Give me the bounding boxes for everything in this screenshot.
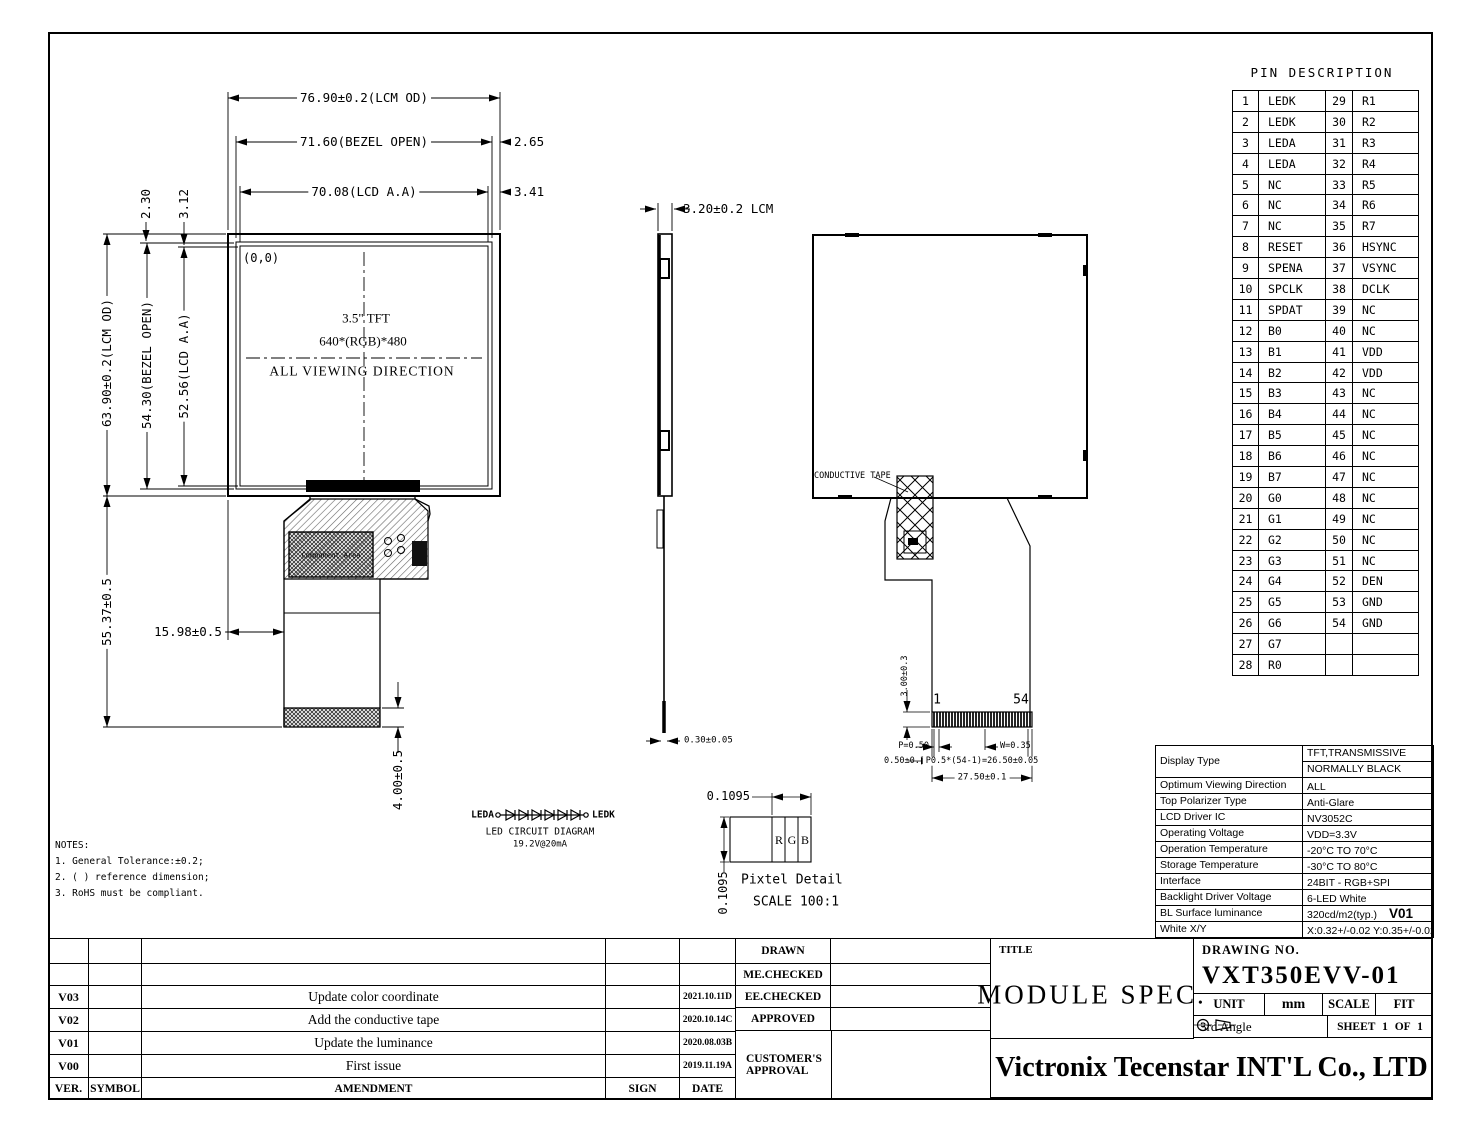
pin-number: 39 (1326, 299, 1353, 320)
company-cell: Victronix Tecenstar INT'L Co., LTD (991, 1039, 1432, 1096)
revision-row: V03 Update color coordinate 2021.10.11D (49, 986, 736, 1009)
unit-label: UNIT (1194, 994, 1265, 1015)
pin-number: 7 (1233, 216, 1259, 237)
pin-name: NC (1353, 446, 1419, 467)
revision-version: V00 (49, 1055, 89, 1078)
pin-name: SPDAT (1259, 299, 1326, 320)
pin-name: R6 (1353, 195, 1419, 216)
subpixel-g-label: G (788, 834, 797, 846)
pin-number: 49 (1326, 508, 1353, 529)
revision-symbol (89, 1055, 142, 1078)
revision-amendment: First issue (142, 1055, 606, 1078)
pin-number: 2 (1233, 111, 1259, 132)
revision-version: V01 (49, 1032, 89, 1055)
revision-header-symbol: SYMBOL (89, 1078, 142, 1100)
pin-number: 10 (1233, 279, 1259, 300)
revision-amendment: Update color coordinate (142, 986, 606, 1009)
pin-name: GND (1353, 613, 1419, 634)
revision-symbol (89, 1009, 142, 1032)
spec-value: TFT,TRANSMISSIVE (1303, 746, 1434, 762)
pin-table-row: 27 G7 (1233, 634, 1419, 655)
pin-name: VSYNC (1353, 258, 1419, 279)
pin-number: 42 (1326, 362, 1353, 383)
company-name: Victronix Tecenstar INT'L Co., LTD (995, 1052, 1428, 1084)
approval-label-me-checked: ME.CHECKED (736, 964, 831, 986)
revision-row: V01 Update the luminance 2020.08.03B (49, 1032, 736, 1055)
revision-empty-row (49, 964, 736, 986)
dim-side-tail: 0.30±0.05 (684, 737, 733, 746)
pin-name: R0 (1259, 655, 1326, 676)
spec-label: Operation Temperature (1156, 841, 1303, 857)
pin-number: 35 (1326, 216, 1353, 237)
pin-name: NC (1259, 216, 1326, 237)
spec-value: NORMALLY BLACK (1303, 761, 1434, 777)
pin-table-row: 21 G1 49 NC (1233, 508, 1419, 529)
approval-field-ee-checked (831, 986, 991, 1008)
pin-name: NC (1353, 487, 1419, 508)
display-spec-table: Display Type TFT,TRANSMISSIVE NORMALLY B… (1155, 745, 1434, 938)
pin-table-row: 17 B5 45 NC (1233, 425, 1419, 446)
approval-field-me-checked (831, 964, 991, 986)
pin-name: B4 (1259, 404, 1326, 425)
drawing-no-label: DRAWING NO. (1202, 944, 1300, 957)
revision-header-date: DATE (680, 1078, 736, 1100)
spec-row: Backlight Driver Voltage 6-LED White (1156, 889, 1434, 905)
pin-table-row: 28 R0 (1233, 655, 1419, 676)
pin-table-row: 7 NC 35 R7 (1233, 216, 1419, 237)
pin-table-row: 5 NC 33 R5 (1233, 174, 1419, 195)
conductive-tape-label: CONDUCTIVE TAPE (814, 472, 891, 481)
pin-number: 31 (1326, 132, 1353, 153)
pin-number: 36 (1326, 237, 1353, 258)
dim-connector-total-width: 27.50±0.1 (955, 774, 1010, 783)
dim-fpc-length: 55.37±0.5 (101, 575, 114, 649)
dim-contact-span: P0.5*(54-1)=26.50±0.05 (923, 757, 1042, 766)
spec-value: 320cd/m2(typ.)V01 (1303, 905, 1434, 921)
dim-aa-right-gap: 3.41 (514, 186, 544, 199)
pin-number: 20 (1233, 487, 1259, 508)
pin-number: 23 (1233, 550, 1259, 571)
pin-name: HSYNC (1353, 237, 1419, 258)
pixel-detail-scale: SCALE 100:1 (753, 896, 839, 909)
revision-date: 2020.10.14C (680, 1009, 736, 1032)
revision-row: V00 First issue 2019.11.19A (49, 1055, 736, 1078)
pin-number: 18 (1233, 446, 1259, 467)
panel-size-label: 3.5" TFT (342, 312, 390, 325)
revision-version: V03 (49, 986, 89, 1009)
pin-name: B3 (1259, 383, 1326, 404)
pin-name: VDD (1353, 341, 1419, 362)
pin-name: DCLK (1353, 279, 1419, 300)
pin-table-row: 14 B2 42 VDD (1233, 362, 1419, 383)
dim-bezel-right-gap: 2.65 (514, 136, 544, 149)
spec-label: Operating Voltage (1156, 825, 1303, 841)
dim-lcm-thickness: 3.20±0.2 LCM (683, 203, 773, 216)
pixel-detail-title: Pixtel Detail (741, 874, 843, 887)
title-cell: TITLE MODULE SPEC. (991, 939, 1194, 1039)
pin-number: 51 (1326, 550, 1353, 571)
pin-name: LEDA (1259, 153, 1326, 174)
spec-value: X:0.32+/-0.02 Y:0.35+/-0.02 (1303, 921, 1434, 937)
spec-label: Top Polarizer Type (1156, 793, 1303, 809)
pin-name: G6 (1259, 613, 1326, 634)
dim-contact-height: 3.00±0.3 (901, 656, 910, 697)
spec-label: Backlight Driver Voltage (1156, 889, 1303, 905)
dim-contact-margin: 0.50±0.1 (884, 757, 925, 766)
note-3: 3. RoHS must be compliant. (55, 889, 204, 899)
pin-number: 19 (1233, 467, 1259, 488)
pin-name: NC (1353, 425, 1419, 446)
pin-table-title: PIN DESCRIPTION (1251, 67, 1394, 80)
revision-sign (606, 1009, 680, 1032)
projection-sheet-row: 3rd Angle SHEET 1 OF 1 (1194, 1016, 1432, 1038)
document-title: MODULE SPEC. (977, 982, 1207, 1009)
pin-name: G2 (1259, 529, 1326, 550)
pin-number: 21 (1233, 508, 1259, 529)
spec-row: Storage Temperature -30°C TO 80°C (1156, 857, 1434, 873)
pin-name: NC (1353, 467, 1419, 488)
revision-header-row: VER. SYMBOL AMENDMENT SIGN DATE (49, 1078, 736, 1100)
pin-name: NC (1259, 195, 1326, 216)
revision-sign (606, 1055, 680, 1078)
pin-name: NC (1353, 550, 1419, 571)
approval-field-drawn (831, 939, 991, 964)
pin-number: 48 (1326, 487, 1353, 508)
side-view (640, 203, 690, 741)
pin-number: 34 (1326, 195, 1353, 216)
pin-table-row: 12 B0 40 NC (1233, 320, 1419, 341)
revision-amendment: Add the conductive tape (142, 1009, 606, 1032)
revision-amendment: Update the luminance (142, 1032, 606, 1055)
spec-row: Display Type TFT,TRANSMISSIVE (1156, 746, 1434, 762)
pin-name: G4 (1259, 571, 1326, 592)
spec-label: BL Surface luminance (1156, 905, 1303, 921)
dim-fpc-offset: 15.98±0.5 (151, 626, 225, 639)
connector-pin-54-label: 54 (1013, 694, 1029, 707)
spec-value: ALL (1303, 777, 1434, 793)
spec-row: Operation Temperature -20°C TO 70°C (1156, 841, 1434, 857)
unit-value: mm (1265, 994, 1323, 1015)
module-spec-drawing-sheet: 76.90±0.2(LCM OD) 71.60(BEZEL OPEN) 70.0… (0, 0, 1472, 1136)
drawing-number: VXT350EVV-01 (1202, 963, 1401, 988)
pin-name: NC (1353, 299, 1419, 320)
pin-name: RESET (1259, 237, 1326, 258)
spec-row: LCD Driver IC NV3052C (1156, 809, 1434, 825)
pin-name: DEN (1353, 571, 1419, 592)
pin-number: 53 (1326, 592, 1353, 613)
note-1: 1. General Tolerance:±0.2; (55, 857, 204, 867)
subpixel-b-label: B (801, 834, 809, 846)
pin-number: 54 (1326, 613, 1353, 634)
pin-name: SPCLK (1259, 279, 1326, 300)
pin-table-row: 10 SPCLK 38 DCLK (1233, 279, 1419, 300)
pin-name: VDD (1353, 362, 1419, 383)
revision-date: 2020.08.03B (680, 1032, 736, 1055)
approval-label-approved: APPROVED (736, 1008, 831, 1031)
pin-name (1353, 634, 1419, 655)
revision-sign (606, 986, 680, 1009)
spec-label: LCD Driver IC (1156, 809, 1303, 825)
approval-field-approved (831, 1008, 991, 1031)
pin-number: 38 (1326, 279, 1353, 300)
pin-number: 28 (1233, 655, 1259, 676)
pin-number: 8 (1233, 237, 1259, 258)
pin-table-row: 23 G3 51 NC (1233, 550, 1419, 571)
pin-name: LEDA (1259, 132, 1326, 153)
pin-table-row: 11 SPDAT 39 NC (1233, 299, 1419, 320)
pin-name: R7 (1353, 216, 1419, 237)
pin-table-row: 1 LEDK 29 R1 (1233, 91, 1419, 112)
pin-table-row: 16 B4 44 NC (1233, 404, 1419, 425)
pin-table-row: 19 B7 47 NC (1233, 467, 1419, 488)
spec-label: Optimum Viewing Direction (1156, 777, 1303, 793)
pin-number: 52 (1326, 571, 1353, 592)
pin-number: 1 (1233, 91, 1259, 112)
scale-value: FIT (1376, 994, 1432, 1015)
pin-name: NC (1353, 529, 1419, 550)
pin-number: 13 (1233, 341, 1259, 362)
pin-number: 12 (1233, 320, 1259, 341)
pin-name: B0 (1259, 320, 1326, 341)
pin-number: 5 (1233, 174, 1259, 195)
pin-number: 22 (1233, 529, 1259, 550)
pin-name: B2 (1259, 362, 1326, 383)
pin-number: 50 (1326, 529, 1353, 550)
pin-name: R4 (1353, 153, 1419, 174)
pin-name: GND (1353, 592, 1419, 613)
pin-number: 16 (1233, 404, 1259, 425)
pin-table-row: 8 RESET 36 HSYNC (1233, 237, 1419, 258)
spec-row: BL Surface luminance 320cd/m2(typ.)V01 (1156, 905, 1434, 921)
sheet-number: SHEET 1 OF 1 (1328, 1016, 1432, 1037)
tape-corner-marks (838, 233, 1087, 499)
pin-table-row: 13 B1 41 VDD (1233, 341, 1419, 362)
pin-name: SPENA (1259, 258, 1326, 279)
pin-table-row: 26 G6 54 GND (1233, 613, 1419, 634)
spec-row: Interface 24BIT - RGB+SPI (1156, 873, 1434, 889)
pin-number: 44 (1326, 404, 1353, 425)
spec-value: -20°C TO 70°C (1303, 841, 1434, 857)
spec-label: White X/Y (1156, 921, 1303, 937)
subpixel-r-label: R (775, 834, 783, 846)
pixel-detail-figure (720, 793, 811, 872)
pin-name: G7 (1259, 634, 1326, 655)
pin-number: 6 (1233, 195, 1259, 216)
led-circuit-schematic (496, 810, 588, 820)
pin-table-row: 3 LEDA 31 R3 (1233, 132, 1419, 153)
title-block: TITLE MODULE SPEC. DRAWING NO. VXT350EVV… (990, 938, 1433, 1098)
front-view-dimension-lines (103, 92, 511, 753)
spec-row: White X/Y X:0.32+/-0.02 Y:0.35+/-0.02 (1156, 921, 1434, 937)
conductive-tape-shape (897, 476, 933, 559)
pin-number: 41 (1326, 341, 1353, 362)
revision-date: 2021.10.11D (680, 986, 736, 1009)
pin-number: 17 (1233, 425, 1259, 446)
fpc-contact-strip (932, 712, 1032, 727)
pin-table-row: 20 G0 48 NC (1233, 487, 1419, 508)
dim-active-area-height: 52.56(LCD A.A) (178, 310, 191, 421)
revision-row: V02 Add the conductive tape 2020.10.14C (49, 1009, 736, 1032)
pin-name: LEDK (1259, 91, 1326, 112)
approval-label-ee-checked: EE.CHECKED (736, 986, 831, 1008)
pin-table-row: 9 SPENA 37 VSYNC (1233, 258, 1419, 279)
revision-date: 2019.11.19A (680, 1055, 736, 1078)
dim-bezel-open-height: 54.30(BEZEL OPEN) (141, 298, 154, 432)
spec-value: -30°C TO 80°C (1303, 857, 1434, 873)
pin-table-row: 22 G2 50 NC (1233, 529, 1419, 550)
back-view (813, 233, 1087, 782)
pin-number: 9 (1233, 258, 1259, 279)
pin-name: B1 (1259, 341, 1326, 362)
spec-row: Optimum Viewing Direction ALL (1156, 777, 1434, 793)
dim-lcm-width: 76.90±0.2(LCM OD) (297, 92, 431, 105)
revision-header-ver: VER. (49, 1078, 89, 1100)
revision-table: V03 Update color coordinate 2021.10.11D … (48, 938, 736, 1100)
pin-name (1353, 655, 1419, 676)
dim-contact-pitch: P=0.50 (898, 742, 929, 751)
led-anode-label: LEDA (471, 810, 494, 820)
pin-number: 11 (1233, 299, 1259, 320)
pin-number: 46 (1326, 446, 1353, 467)
revision-empty-row (49, 939, 736, 964)
pin-name: NC (1353, 404, 1419, 425)
approval-label-drawn: DRAWN (736, 939, 831, 964)
revision-sign (606, 1032, 680, 1055)
pin-number: 33 (1326, 174, 1353, 195)
pin-number: 25 (1233, 592, 1259, 613)
approval-block: DRAWN ME.CHECKED EE.CHECKED APPROVED CUS… (735, 938, 990, 1098)
spec-label: Storage Temperature (1156, 857, 1303, 873)
pin-name: NC (1353, 320, 1419, 341)
title-label: TITLE (999, 945, 1033, 956)
dim-contact-width: W=0.35 (1000, 742, 1031, 751)
pin-name: R2 (1353, 111, 1419, 132)
pin-number: 26 (1233, 613, 1259, 634)
pin-table-row: 6 NC 34 R6 (1233, 195, 1419, 216)
pin-number: 32 (1326, 153, 1353, 174)
dim-bezel-open-width: 71.60(BEZEL OPEN) (297, 136, 431, 149)
pin-name: LEDK (1259, 111, 1326, 132)
dim-fpc-tail: 4.00±0.5 (392, 750, 405, 810)
spec-value: 6-LED White (1303, 889, 1434, 905)
pin-number: 47 (1326, 467, 1353, 488)
pin-name: NC (1353, 508, 1419, 529)
pin-number: 40 (1326, 320, 1353, 341)
pin-number: 14 (1233, 362, 1259, 383)
viewing-direction-label: ALL VIEWING DIRECTION (269, 364, 454, 378)
pin-table-row: 25 G5 53 GND (1233, 592, 1419, 613)
pin-number: 37 (1326, 258, 1353, 279)
revision-symbol (89, 986, 142, 1009)
third-angle-projection-symbol (1194, 1016, 1236, 1034)
pin-name: G0 (1259, 487, 1326, 508)
pin-table-row: 15 B3 43 NC (1233, 383, 1419, 404)
pin-number: 43 (1326, 383, 1353, 404)
pin-number: 29 (1326, 91, 1353, 112)
pin-table-row: 2 LEDK 30 R2 (1233, 111, 1419, 132)
front-view-fpc (284, 480, 430, 727)
component-area-label: Component Area (301, 553, 360, 560)
pin-number: 3 (1233, 132, 1259, 153)
spec-value: 24BIT - RGB+SPI (1303, 873, 1434, 889)
pin-number: 30 (1326, 111, 1353, 132)
spec-label: Display Type (1156, 746, 1303, 778)
spec-value: VDD=3.3V (1303, 825, 1434, 841)
dim-pixel-width: 0.1095 (707, 790, 750, 802)
pin-table-row: 24 G4 52 DEN (1233, 571, 1419, 592)
pin-name: R5 (1353, 174, 1419, 195)
origin-label: (0,0) (243, 252, 279, 264)
dim-aa-top-gap: 3.12 (178, 189, 191, 219)
pin-number (1326, 655, 1353, 676)
approval-label-customer: CUSTOMER'S APPROVAL (736, 1031, 832, 1099)
revision-header-amendment: AMENDMENT (142, 1078, 606, 1100)
led-circuit-title: LED CIRCUIT DIAGRAM (486, 827, 595, 837)
dim-pixel-height: 0.1095 (717, 871, 729, 914)
pin-number: 27 (1233, 634, 1259, 655)
pin-name: R3 (1353, 132, 1419, 153)
dim-active-area-width: 70.08(LCD A.A) (308, 186, 419, 199)
spec-label: Interface (1156, 873, 1303, 889)
pin-name: G1 (1259, 508, 1326, 529)
spec-revision-badge: V01 (1389, 906, 1413, 921)
approval-field-customer (831, 1031, 991, 1099)
revision-version: V02 (49, 1009, 89, 1032)
pin-number (1326, 634, 1353, 655)
scale-label: SCALE (1323, 994, 1376, 1015)
pin-table-row: 4 LEDA 32 R4 (1233, 153, 1419, 174)
spec-value: NV3052C (1303, 809, 1434, 825)
pin-name: G3 (1259, 550, 1326, 571)
pin-name: G5 (1259, 592, 1326, 613)
unit-scale-row: UNIT mm SCALE FIT (1194, 994, 1432, 1016)
pin-name: NC (1353, 383, 1419, 404)
spec-value: Anti-Glare (1303, 793, 1434, 809)
led-circuit-rating: 19.2V@20mA (513, 841, 567, 850)
note-2: 2. ( ) reference dimension; (55, 873, 209, 883)
pin-number: 15 (1233, 383, 1259, 404)
connector-pin-1-label: 1 (933, 694, 941, 707)
dim-lcm-height: 63.90±0.2(LCM OD) (101, 296, 114, 430)
pin-number: 24 (1233, 571, 1259, 592)
revision-symbol (89, 1032, 142, 1055)
pin-name: R1 (1353, 91, 1419, 112)
pin-name: B7 (1259, 467, 1326, 488)
projection-cell: 3rd Angle (1194, 1016, 1328, 1037)
dim-bezel-top-gap: 2.30 (140, 189, 153, 219)
panel-resolution-label: 640*(RGB)*480 (319, 335, 406, 348)
revision-header-sign: SIGN (606, 1078, 680, 1100)
pin-name: B5 (1259, 425, 1326, 446)
pin-table-row: 18 B6 46 NC (1233, 446, 1419, 467)
pin-name: B6 (1259, 446, 1326, 467)
drawing-no-cell: DRAWING NO. VXT350EVV-01 (1194, 939, 1432, 994)
spec-row: Top Polarizer Type Anti-Glare (1156, 793, 1434, 809)
pin-number: 45 (1326, 425, 1353, 446)
pin-name: NC (1259, 174, 1326, 195)
pin-description-table: 1 LEDK 29 R1 2 LEDK 30 R2 3 LEDA 31 R3 (1232, 90, 1419, 676)
notes-title: NOTES: (55, 841, 89, 851)
led-cathode-label: LEDK (592, 810, 615, 820)
pin-number: 4 (1233, 153, 1259, 174)
spec-row: Operating Voltage VDD=3.3V (1156, 825, 1434, 841)
